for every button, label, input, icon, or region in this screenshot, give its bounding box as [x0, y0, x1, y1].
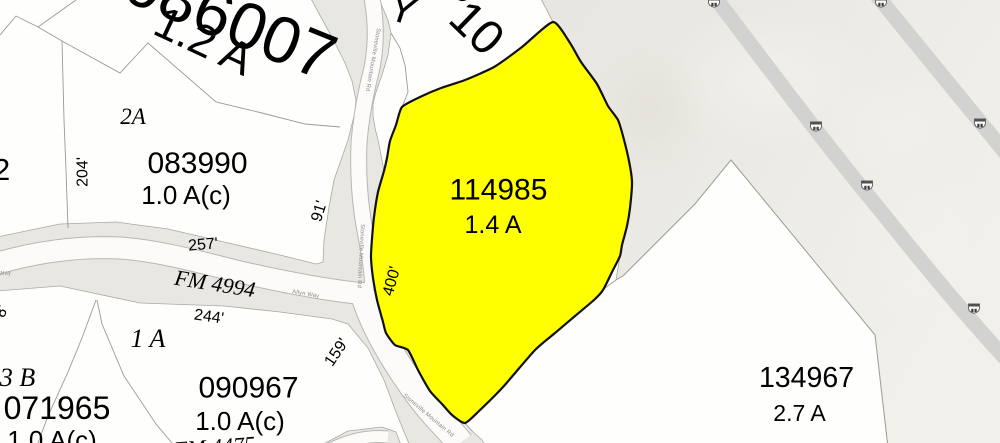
svg-text:134967: 134967 [759, 362, 854, 394]
svg-text:090967: 090967 [198, 372, 298, 405]
svg-text:1.4 A: 1.4 A [465, 211, 522, 239]
svg-text:1.0 A(c): 1.0 A(c) [7, 425, 97, 443]
svg-text:1 A: 1 A [131, 324, 166, 353]
svg-text:3 B: 3 B [0, 363, 35, 392]
svg-text:257': 257' [188, 235, 219, 255]
svg-text:2: 2 [0, 152, 10, 187]
svg-text:071965: 071965 [4, 390, 111, 426]
svg-text:083990: 083990 [147, 147, 247, 180]
svg-text:204': 204' [75, 157, 92, 187]
svg-text:2A: 2A [120, 104, 147, 129]
svg-text:2.7 A: 2.7 A [773, 400, 826, 426]
svg-text:114985: 114985 [450, 174, 548, 207]
svg-text:1.0 A(c): 1.0 A(c) [141, 180, 231, 210]
